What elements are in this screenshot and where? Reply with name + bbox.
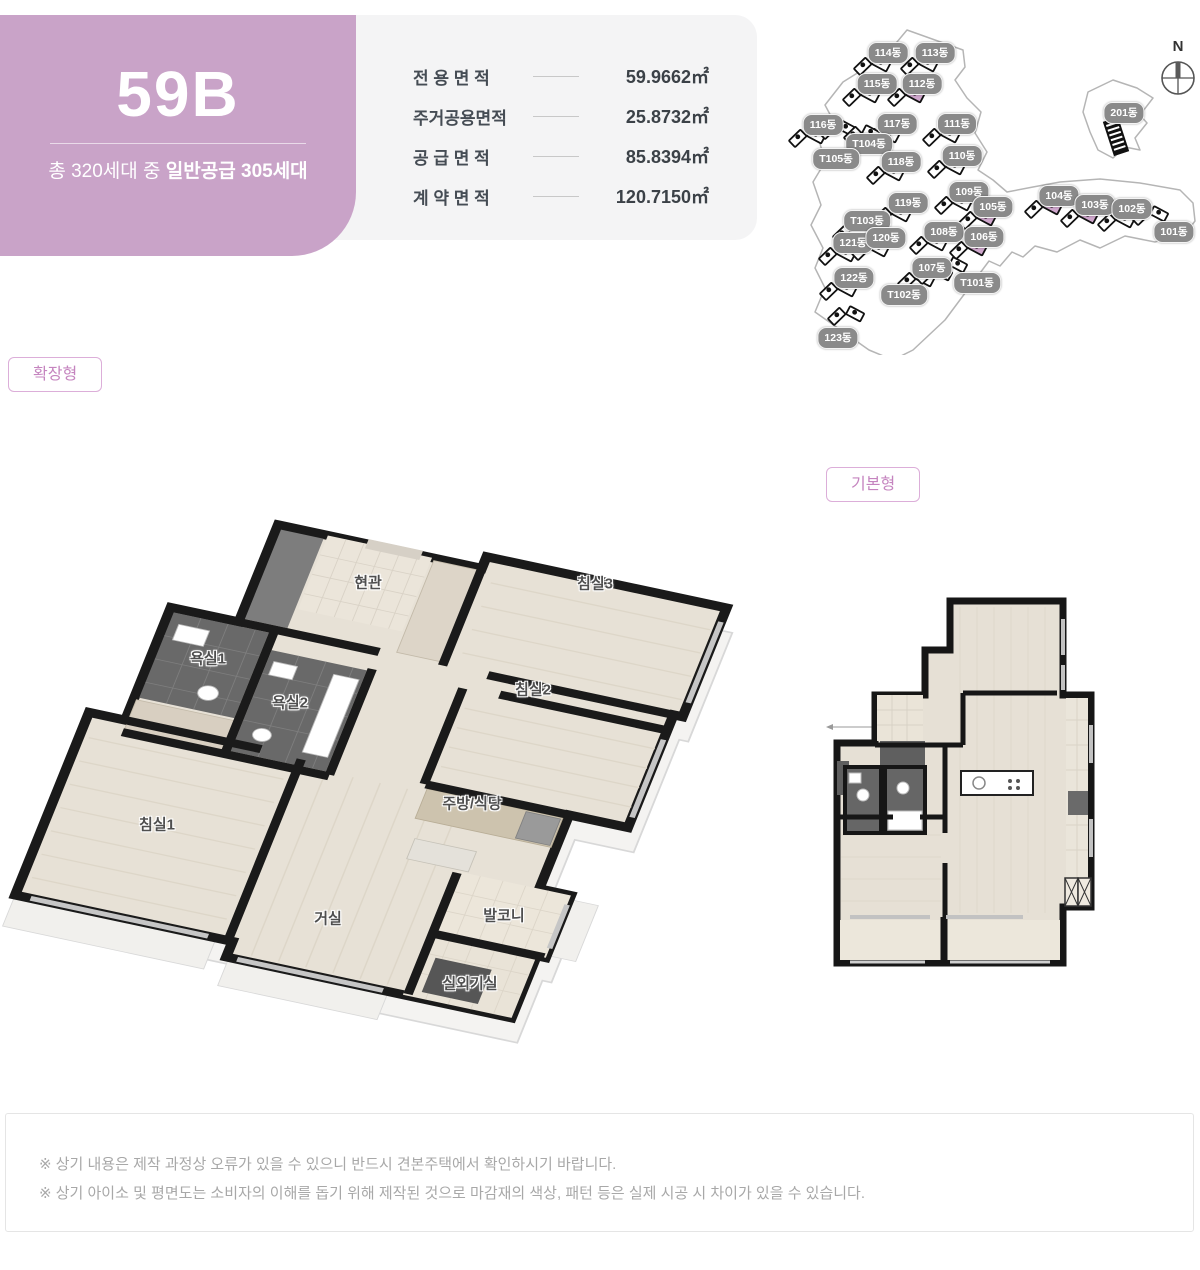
disclaimer-line-2: ※ 상기 아이소 및 평면도는 소비자의 이해를 돕기 위해 제작된 것으로 마… (39, 1179, 1163, 1208)
building-label-T102동: T102동 (880, 284, 928, 306)
building-label-113동: 113동 (915, 42, 956, 64)
area-value: 59.9662㎡ (591, 63, 709, 89)
area-row-supply: 공 급 면 적 85.8394㎡ (413, 136, 709, 176)
area-label: 전 용 면 적 (413, 64, 527, 89)
area-label: 주거공용면적 (413, 104, 527, 129)
area-label: 계 약 면 적 (413, 184, 527, 209)
building-label-110동: 110동 (942, 145, 983, 167)
basic-floorplan-graphic (825, 595, 1110, 975)
tab-basic-plan[interactable]: 기본형 (826, 467, 920, 502)
building-label-115동: 115동 (857, 73, 898, 95)
building-label-122동: 122동 (833, 267, 874, 289)
building-label-T101동: T101동 (953, 272, 1001, 294)
area-row-exclusive: 전 용 면 적 59.9662㎡ (413, 56, 709, 96)
iso-floorplan-graphic (0, 430, 760, 1075)
building-label-101동: 101동 (1153, 221, 1194, 243)
area-row-contract: 계 약 면 적 120.7150㎡ (413, 176, 709, 216)
site-map: N 114동113동115동112동116동117동111동T104동T105동… (795, 20, 1200, 355)
unit-subtitle-bold: 일반공급 305세대 (166, 161, 308, 182)
tab-expanded-plan[interactable]: 확장형 (8, 357, 102, 392)
building-label-119동: 119동 (888, 192, 929, 214)
area-row-line (533, 116, 579, 117)
unit-card-divider (50, 143, 306, 144)
building-label-201동: 201동 (1103, 102, 1144, 124)
building-label-111동: 111동 (937, 113, 977, 135)
floorplan-page: 59B 총 320세대 중 일반공급 305세대 전 용 면 적 59.9662… (0, 0, 1200, 1270)
building-label-102동: 102동 (1111, 198, 1152, 220)
unit-code-card: 59B 총 320세대 중 일반공급 305세대 (0, 15, 356, 256)
building-label-T105동: T105동 (812, 148, 860, 170)
building-label-118동: 118동 (881, 151, 922, 173)
area-row-line (533, 156, 579, 157)
disclaimer-line-1: ※ 상기 내용은 제작 과정상 오류가 있을 수 있으니 반드시 견본주택에서 … (39, 1150, 1163, 1179)
building-label-103동: 103동 (1074, 194, 1115, 216)
building-label-106동: 106동 (963, 226, 1004, 248)
area-row-line (533, 196, 579, 197)
area-label: 공 급 면 적 (413, 144, 527, 169)
unit-subtitle-prefix: 총 320세대 중 (48, 161, 165, 182)
area-value: 85.8394㎡ (591, 143, 709, 169)
building-label-123동: 123동 (817, 327, 858, 349)
unit-code: 59B (0, 59, 356, 129)
building-label-104동: 104동 (1038, 185, 1079, 207)
building-label-117동: 117동 (877, 113, 918, 135)
building-label-108동: 108동 (923, 221, 964, 243)
area-value: 120.7150㎡ (591, 183, 709, 209)
unit-subtitle: 총 320세대 중 일반공급 305세대 (0, 156, 356, 183)
site-map-buildings: 114동113동115동112동116동117동111동T104동T105동11… (795, 20, 1200, 355)
building-label-116동: 116동 (803, 114, 844, 136)
building-label-114동: 114동 (868, 42, 909, 64)
area-table: 전 용 면 적 59.9662㎡ 주거공용면적 25.8732㎡ 공 급 면 적… (413, 56, 709, 216)
area-value: 25.8732㎡ (591, 103, 709, 129)
building-label-105동: 105동 (972, 196, 1013, 218)
building-label-112동: 112동 (902, 73, 943, 95)
area-row-common: 주거공용면적 25.8732㎡ (413, 96, 709, 136)
building-label-107동: 107동 (911, 257, 952, 279)
disclaimer-box: ※ 상기 내용은 제작 과정상 오류가 있을 수 있으니 반드시 견본주택에서 … (5, 1113, 1194, 1232)
building-label-120동: 120동 (865, 227, 906, 249)
area-row-line (533, 76, 579, 77)
